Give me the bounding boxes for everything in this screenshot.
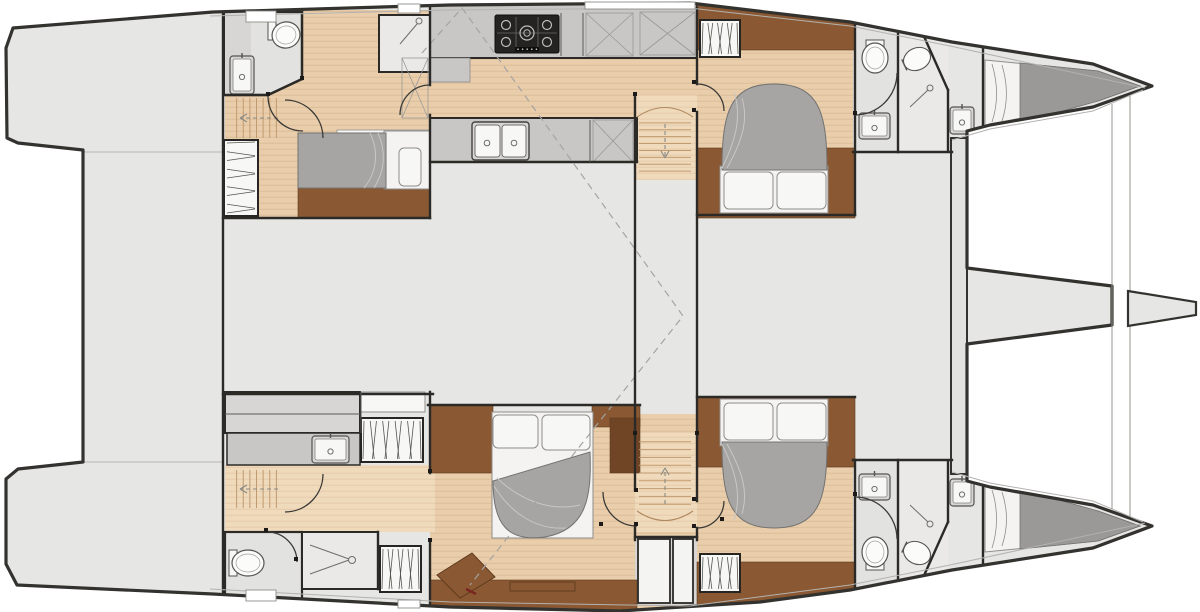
deck-hatch [246,590,276,601]
door-jamb [264,528,268,532]
door-jamb [633,92,637,96]
stern-hatch [673,539,693,603]
aft-stbd-shower [302,532,378,589]
fwd-port-bed-pillow [777,172,826,209]
door-jamb [692,80,696,84]
stove-knob-dot [522,48,524,50]
fwd-stbd-toilet [862,537,888,567]
stbd-companionway-floor-planks [635,433,697,532]
door-jamb [266,92,270,96]
door-jamb [428,469,432,473]
stove-knob-dot [531,48,533,50]
door-jamb [695,431,699,435]
stern-hatch [638,539,670,603]
fwd-port-toilet [862,43,888,73]
fwd-stbd-bed-duvet [722,442,827,528]
door-jamb [692,497,696,501]
aft-port-bed-pillow [399,148,421,186]
stove-knob-dot [526,48,528,50]
door-jamb [294,557,298,561]
door-jamb [599,522,603,526]
door-jamb [720,517,724,521]
door-jamb [428,538,432,542]
aft-stbd-toilet [232,550,264,576]
fwd-port-wardrobe [700,20,740,57]
stbd-vanity-sink-basin [315,439,346,460]
deck-hatch [398,4,420,13]
galley-double-sink-basin [475,125,500,157]
fwd-stbd-wardrobe [700,554,740,592]
crew-port-sink-basin [953,110,971,131]
galley-counter-step [430,58,470,82]
stbd-vanity-cabinet [225,392,360,433]
fwd-stbd-head-sink-basin [862,477,887,497]
deck-hatch [398,600,420,608]
owner-bed-pillow [493,415,538,448]
door-jamb [634,522,638,526]
door-jamb [634,488,638,492]
fwd-port-bed-pillow [724,172,773,209]
fwd-port-shower [898,26,948,152]
door-jamb [692,524,696,528]
door-jamb [853,492,857,496]
door-jamb [633,431,637,435]
catamaran-floorplan [0,0,1200,612]
deck-hatch [246,11,276,22]
forward-crossbeam [951,138,967,474]
fwd-port-head-sink-basin [862,116,887,136]
galley-double-sink-basin [502,125,526,157]
door-jamb [692,108,696,112]
aft-port-head-sink-basin [233,59,251,91]
deck-hatch [585,2,695,9]
fwd-port-bed-duvet [722,84,827,170]
fwd-stbd-bed-pillow [724,403,773,440]
floorplan-canvas [0,0,1200,612]
bowsprit [1128,291,1196,326]
fwd-stbd-bed-pillow [777,403,826,440]
door-jamb [853,111,857,115]
door-jamb [300,76,304,80]
stove-knob-dot [536,48,538,50]
aft-stbd-wardrobe [380,546,421,592]
owner-band-left [430,405,493,473]
stove-knob-dot [517,48,519,50]
crew-stbd-sink-basin [953,482,971,503]
aft-port-bed-base [298,188,430,218]
galley-lower-counter [430,118,637,162]
owner-bed-pillow [542,415,590,450]
